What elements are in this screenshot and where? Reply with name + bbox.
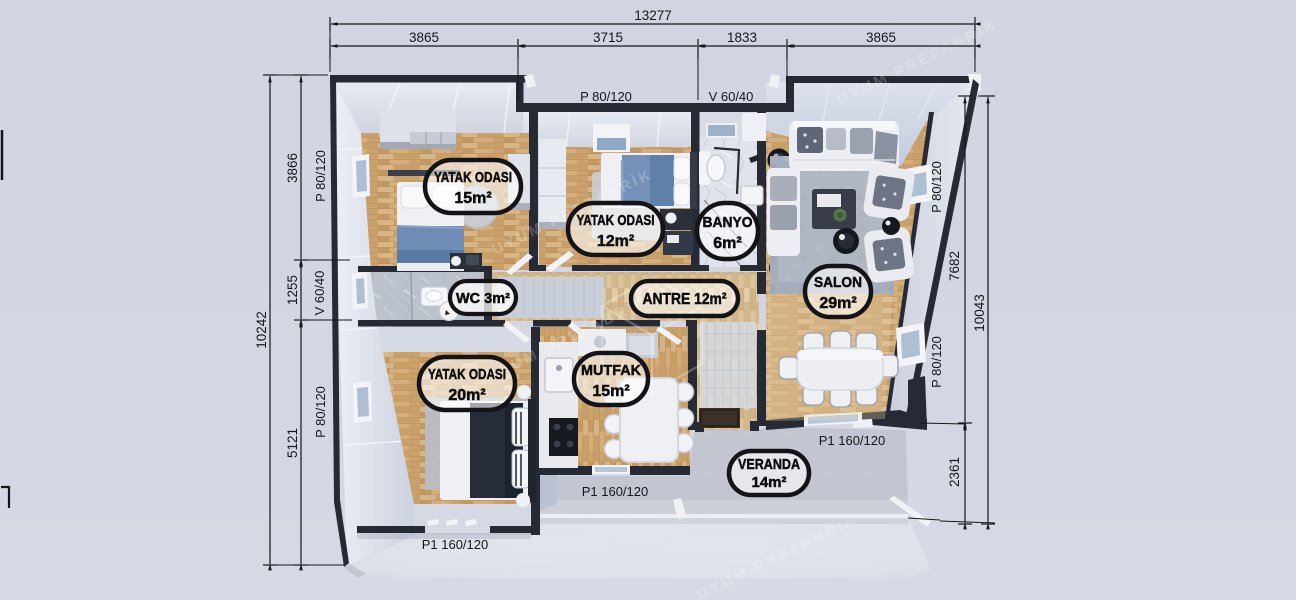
svg-text:P1 160/120: P1 160/120 xyxy=(819,433,886,448)
svg-text:10242: 10242 xyxy=(254,311,269,349)
svg-text:VERANDA: VERANDA xyxy=(738,457,800,473)
svg-text:ANTRE 12m²: ANTRE 12m² xyxy=(643,291,727,308)
svg-text:P 80/120: P 80/120 xyxy=(313,150,328,202)
svg-text:13277: 13277 xyxy=(634,8,672,23)
svg-text:BANYO: BANYO xyxy=(703,214,753,231)
svg-text:15m²: 15m² xyxy=(454,190,491,207)
svg-text:YATAK ODASI: YATAK ODASI xyxy=(577,212,655,229)
svg-text:10043: 10043 xyxy=(972,294,987,332)
svg-text:29m²: 29m² xyxy=(819,295,856,312)
svg-text:2361: 2361 xyxy=(947,457,962,487)
svg-text:6m²: 6m² xyxy=(713,235,741,252)
svg-text:1255: 1255 xyxy=(285,275,300,305)
svg-text:20m²: 20m² xyxy=(448,387,485,404)
svg-text:5121: 5121 xyxy=(285,428,300,458)
svg-text:P 80/120: P 80/120 xyxy=(580,89,632,104)
svg-text:YATAK ODASI: YATAK ODASI xyxy=(434,169,512,186)
svg-text:WC 3m²: WC 3m² xyxy=(456,291,510,307)
svg-text:15m²: 15m² xyxy=(592,383,629,400)
svg-text:3865: 3865 xyxy=(409,30,439,45)
svg-text:SALON: SALON xyxy=(814,274,862,291)
svg-text:V 60/40: V 60/40 xyxy=(312,271,327,316)
svg-text:P1 160/120: P1 160/120 xyxy=(422,537,489,552)
svg-text:14m²: 14m² xyxy=(751,474,786,491)
svg-text:3865: 3865 xyxy=(866,30,896,45)
svg-text:P1 160/120: P1 160/120 xyxy=(582,484,649,499)
svg-text:V 60/40: V 60/40 xyxy=(709,89,754,104)
svg-text:12m²: 12m² xyxy=(597,233,634,250)
svg-text:P 80/120: P 80/120 xyxy=(313,386,328,438)
svg-text:1833: 1833 xyxy=(727,30,757,45)
svg-text:P 80/120: P 80/120 xyxy=(929,336,944,388)
svg-text:3715: 3715 xyxy=(593,30,623,45)
svg-text:7682: 7682 xyxy=(947,251,962,281)
svg-text:YATAK ODASI: YATAK ODASI xyxy=(428,366,506,383)
svg-text:MUTFAK: MUTFAK xyxy=(581,362,641,379)
svg-text:3866: 3866 xyxy=(285,153,300,183)
svg-text:P 80/120: P 80/120 xyxy=(929,161,944,213)
